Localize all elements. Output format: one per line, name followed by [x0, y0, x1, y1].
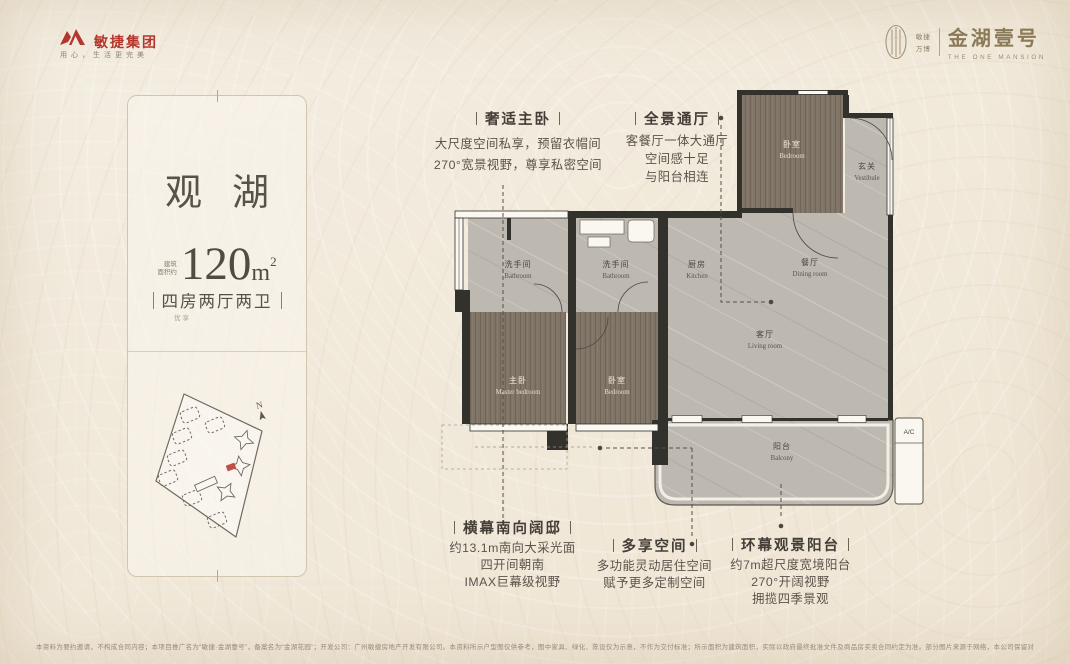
brand-name: 敏捷集团	[94, 32, 158, 52]
unit-name: 观湖	[128, 162, 306, 216]
annotation-line: 拥揽四季景观	[688, 591, 893, 608]
annotation-panorama-balcony: 环幕观景阳台 约7m超尺度宽境阳台 270°开阔视野 拥揽四季景观	[688, 536, 893, 608]
annotation-title-text: 横幕南向阔邸	[463, 517, 562, 538]
annotation-title-text: 环幕观景阳台	[741, 534, 840, 555]
annotation-title: 横幕南向阔邸	[405, 519, 620, 536]
annotation-lines: 客餐厅一体大通厅 空间感十足 与阳台相连	[597, 132, 757, 186]
room-label-bedroom2-en: Bedroom	[604, 389, 630, 396]
area-prefix-line1: 建筑	[157, 261, 177, 269]
title-bar	[613, 539, 614, 552]
annotation-line: 空间感十足	[597, 150, 757, 168]
annotation-line: 客餐厅一体大通厅	[597, 132, 757, 150]
annotation-line: 约7m超尺度宽境阳台	[688, 557, 893, 574]
room-label-living-en: Living room	[748, 343, 783, 350]
title-bar	[454, 521, 455, 534]
title-bar	[570, 521, 571, 534]
annotation-title: 环幕观景阳台	[688, 536, 893, 553]
title-bar	[718, 112, 719, 125]
title-bar	[848, 538, 849, 551]
project-tag-1: 敏捷	[916, 31, 931, 41]
room-label-bath2-en: Bathroom	[602, 273, 630, 280]
area-sup: 2	[270, 254, 277, 269]
layout-tag-text: 四房两厅两卫	[162, 288, 273, 312]
project-tag-2: 万博	[916, 43, 931, 53]
compass-icon: N	[255, 399, 267, 420]
room-label-dining-en: Dining room	[793, 271, 829, 278]
area-unit-m: m	[251, 260, 270, 286]
room-label-balcony-en: Balcony	[771, 455, 794, 462]
card-divider	[128, 351, 306, 352]
annotation-line: 与阳台相连	[597, 168, 757, 186]
room-label-bedroom2-cn: 卧室	[608, 375, 626, 385]
ac-platform: A/C	[895, 418, 923, 504]
annotation-title-text: 多享空间	[622, 535, 688, 556]
annotation-title: 全景通厅	[597, 110, 757, 127]
layout-sub: 优享	[174, 312, 191, 322]
room-label-vestibule-en: Vestibule	[854, 175, 879, 182]
area-prefix: 建筑 面积约	[157, 261, 177, 277]
project-name-en: THE ONE MANSION	[948, 54, 1046, 61]
brand-logo: 敏捷集团	[58, 26, 158, 52]
annotation-title-text: 奢适主卧	[485, 108, 551, 129]
room-label-kitchen-cn: 厨房	[688, 259, 706, 269]
room-label-bedroom-tr-en: Bedroom	[779, 153, 805, 160]
annotation-open-hall: 全景通厅 客餐厅一体大通厅 空间感十足 与阳台相连	[597, 110, 757, 186]
room-label-balcony-cn: 阳台	[773, 441, 791, 451]
annotation-lines: 约7m超尺度宽境阳台 270°开阔视野 拥揽四季景观	[688, 557, 893, 608]
unit-info-card: 观湖 建筑 面积约 120 m2 四房两厅两卫 优享	[127, 95, 307, 577]
tag-bar-left	[153, 292, 154, 309]
siteplan-map: N	[140, 378, 294, 560]
structure-dashed-outline	[442, 425, 594, 469]
project-tags: 敏捷 万博	[916, 31, 931, 53]
brand-slogan: 用心，生活更完美	[60, 50, 148, 60]
mansion-emblem-icon	[884, 23, 908, 61]
annotation-title-text: 全景通厅	[644, 108, 710, 129]
project-name-block: 金湖壹号 THE ONE MANSION	[948, 22, 1046, 61]
compass-label: N	[255, 399, 264, 410]
area-unit: m2	[251, 257, 276, 286]
area-prefix-line2: 面积约	[157, 269, 177, 277]
layout-tag: 四房两厅两卫	[128, 288, 306, 312]
room-label-bath2-cn: 洗手间	[603, 259, 630, 269]
area-value: 120	[181, 242, 252, 286]
room-label-master-en: Master bedroom	[496, 389, 541, 396]
title-bar	[559, 112, 560, 125]
room-label-kitchen-en: Kitchen	[686, 273, 708, 280]
project-logo: 敏捷 万博 金湖壹号 THE ONE MANSION	[884, 22, 1046, 61]
title-bar	[476, 112, 477, 125]
ac-label: A/C	[904, 429, 915, 436]
footer-disclaimer: 本资料为要约邀请，不构成合同内容；本项目推广名为“敏捷·金湖壹号”，备案名为“金…	[36, 641, 1034, 651]
room-label-bedroom-tr-cn: 卧室	[783, 139, 801, 149]
agile-swoosh-icon	[58, 26, 88, 50]
annotation-line: 270°开阔视野	[688, 574, 893, 591]
project-name: 金湖壹号	[948, 22, 1046, 51]
room-label-dining-cn: 餐厅	[801, 258, 819, 267]
room-label-master-cn: 主卧	[509, 375, 527, 385]
project-separator	[939, 28, 940, 56]
room-label-vestibule-cn: 玄关	[858, 161, 876, 171]
room-label-bath1-cn: 洗手间	[505, 259, 532, 269]
unit-area: 建筑 面积约 120 m2	[128, 242, 306, 286]
poster-page: 敏捷集团 用心，生活更完美 敏捷 万博 金湖壹号 THE ONE MANSION…	[0, 0, 1070, 664]
tag-bar-right	[281, 292, 282, 309]
title-bar	[732, 538, 733, 551]
title-bar	[635, 112, 636, 125]
room-label-bath1-en: Bathroom	[504, 273, 532, 280]
room-label-living-cn: 客厅	[756, 329, 774, 339]
